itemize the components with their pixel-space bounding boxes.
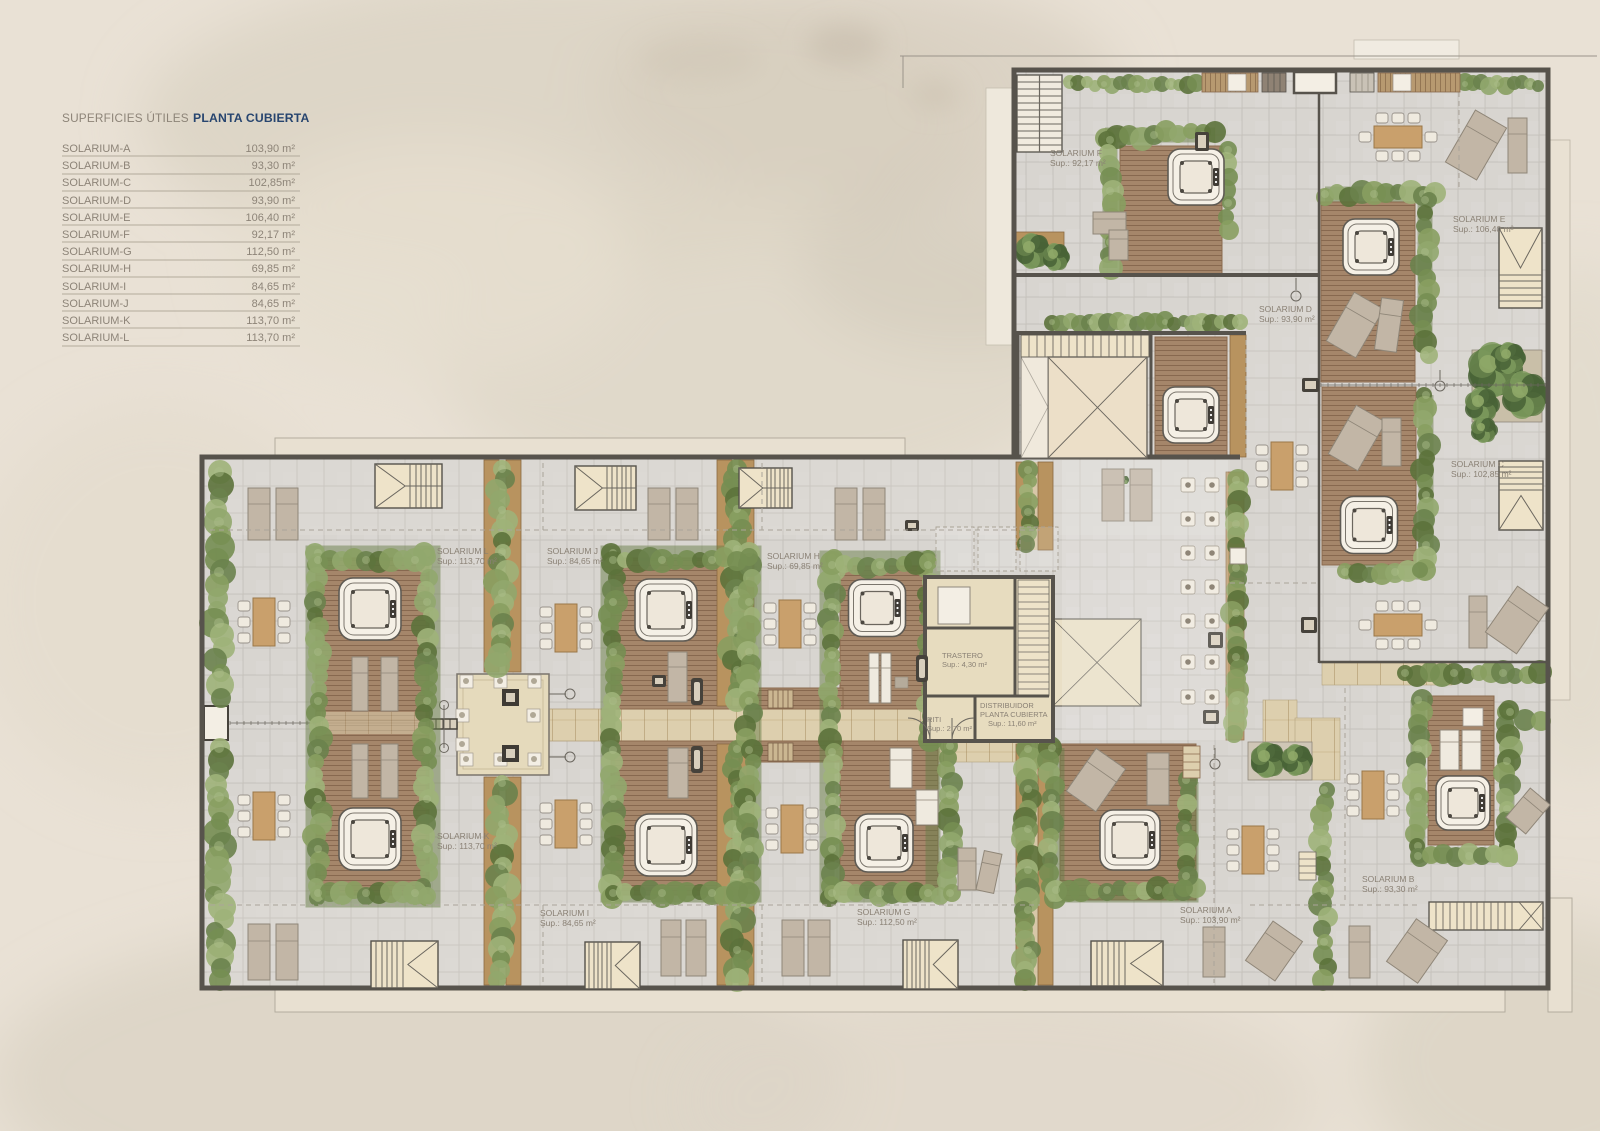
svg-text:103,90 m²: 103,90 m² [245,143,295,155]
svg-text:SOLARIUM-H: SOLARIUM-H [62,263,131,275]
svg-text:SOLARIUM LSup.: 113,70 m²: SOLARIUM LSup.: 113,70 m² [437,546,497,566]
svg-text:93,90 m²: 93,90 m² [252,195,296,207]
svg-text:SOLARIUM ISup.: 84,65 m²: SOLARIUM ISup.: 84,65 m² [540,908,596,928]
svg-text:113,70 m²: 113,70 m² [246,332,295,344]
svg-text:SOLARIUM-J: SOLARIUM-J [62,298,129,310]
svg-text:SOLARIUM FSup.: 92,17 m²: SOLARIUM FSup.: 92,17 m² [1050,148,1106,168]
svg-text:TRASTEROSup.: 4,30 m²: TRASTEROSup.: 4,30 m² [942,651,988,669]
svg-text:SOLARIUM-C: SOLARIUM-C [62,177,131,189]
svg-text:SOLARIUM-E: SOLARIUM-E [62,212,130,224]
svg-text:SOLARIUM-B: SOLARIUM-B [62,160,130,172]
svg-text:SUPERFICIES ÚTILES: SUPERFICIES ÚTILES [62,111,189,125]
svg-text:SOLARIUM KSup.: 113,70 m²: SOLARIUM KSup.: 113,70 m² [437,831,497,851]
svg-text:SOLARIUM BSup.: 93,30 m²: SOLARIUM BSup.: 93,30 m² [1362,874,1418,894]
svg-text:92,17 m²: 92,17 m² [252,229,296,241]
svg-text:102,85m²: 102,85m² [249,177,296,189]
svg-text:113,70 m²: 113,70 m² [246,315,295,327]
svg-text:69,85 m²: 69,85 m² [252,263,296,275]
svg-text:SOLARIUM CSup.: 102,85 m²: SOLARIUM CSup.: 102,85 m² [1451,459,1512,479]
svg-text:84,65 m²: 84,65 m² [252,298,296,310]
svg-text:SOLARIUM ASup.: 103,90 m²: SOLARIUM ASup.: 103,90 m² [1180,905,1241,925]
svg-text:SOLARIUM-A: SOLARIUM-A [62,143,131,155]
svg-text:84,65 m²: 84,65 m² [252,281,296,293]
svg-text:SOLARIUM DSup.: 93,90 m²: SOLARIUM DSup.: 93,90 m² [1259,304,1315,324]
svg-text:SOLARIUM-F: SOLARIUM-F [62,229,130,241]
svg-text:SOLARIUM-K: SOLARIUM-K [62,315,131,327]
svg-text:SOLARIUM-G: SOLARIUM-G [62,246,132,258]
svg-text:SOLARIUM-D: SOLARIUM-D [62,195,131,207]
svg-text:SOLARIUM ESup.: 106,40 m²: SOLARIUM ESup.: 106,40 m² [1453,214,1514,234]
svg-text:SOLARIUM HSup.: 69,85 m²: SOLARIUM HSup.: 69,85 m² [767,551,823,571]
svg-text:SOLARIUM JSup.: 84,65 m²: SOLARIUM JSup.: 84,65 m² [547,546,603,566]
svg-text:106,40 m²: 106,40 m² [245,212,295,224]
svg-text:93,30 m²: 93,30 m² [252,160,296,172]
svg-text:PLANTA CUBIERTA: PLANTA CUBIERTA [193,111,310,125]
svg-text:SOLARIUM-L: SOLARIUM-L [62,332,129,344]
svg-text:SOLARIUM GSup.: 112,50 m²: SOLARIUM GSup.: 112,50 m² [857,907,917,927]
svg-text:112,50 m²: 112,50 m² [246,246,295,258]
svg-text:SOLARIUM-I: SOLARIUM-I [62,281,126,293]
